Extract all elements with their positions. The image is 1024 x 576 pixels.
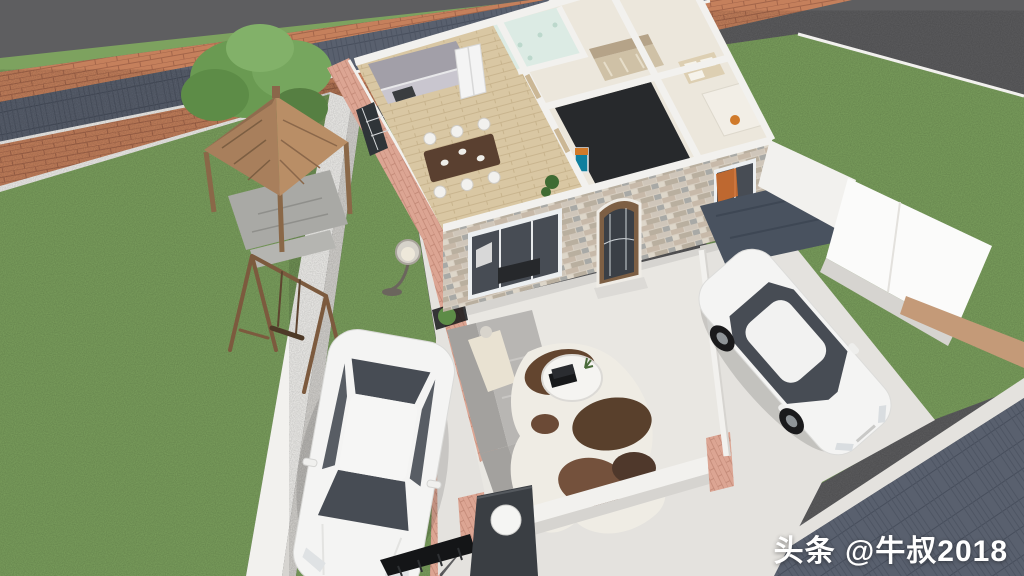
coffee-table: [542, 355, 602, 401]
front-pillar-right: [706, 432, 734, 492]
gazebo-finial: [272, 86, 280, 98]
render-viewport: 头条 @牛叔2018: [0, 0, 1024, 576]
watermark: 头条 @牛叔2018: [774, 526, 1008, 570]
scene-render: [0, 0, 1024, 576]
front-door: [594, 200, 648, 300]
gate-lamp: [491, 505, 521, 535]
indoor-plant: [545, 175, 559, 189]
orange-curtain: [716, 168, 738, 202]
